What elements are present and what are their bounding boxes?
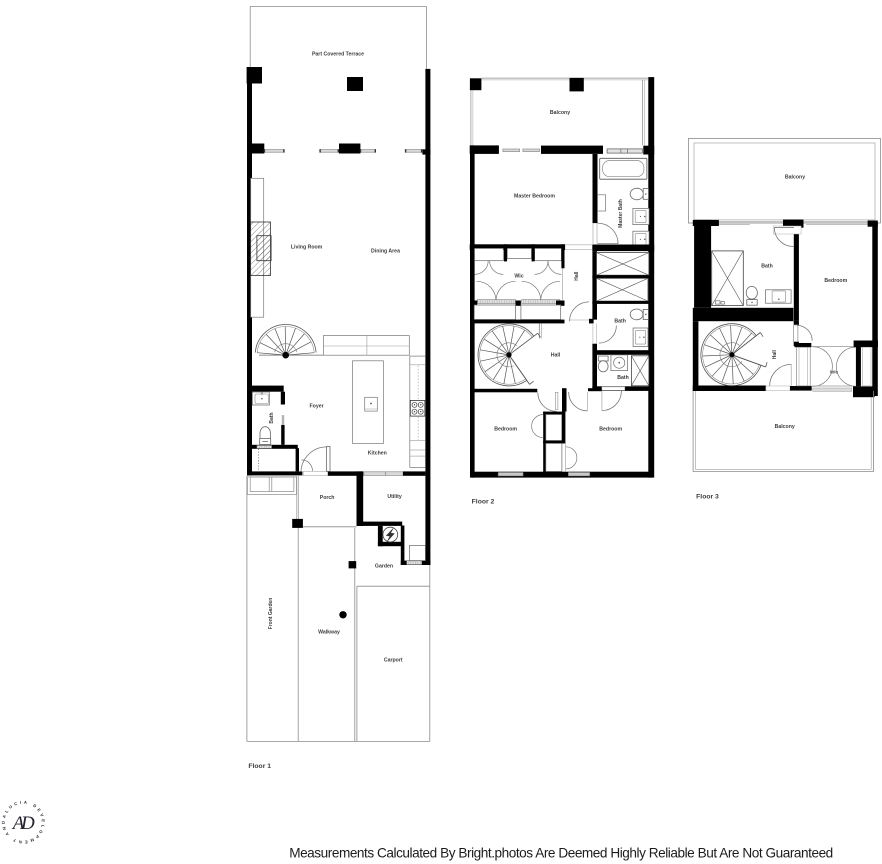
svg-text:Floor 1: Floor 1 bbox=[248, 763, 271, 770]
svg-text:Porch: Porch bbox=[320, 495, 335, 501]
svg-text:Part Covered Terrace: Part Covered Terrace bbox=[312, 52, 364, 58]
svg-text:Bedroom: Bedroom bbox=[599, 427, 622, 433]
svg-text:Bath: Bath bbox=[761, 264, 773, 270]
svg-text:Walkway: Walkway bbox=[318, 629, 340, 635]
svg-text:Hall: Hall bbox=[551, 352, 561, 358]
svg-text:Bath: Bath bbox=[617, 375, 629, 381]
svg-text:Front Garden: Front Garden bbox=[268, 598, 274, 630]
svg-text:Foyer: Foyer bbox=[310, 403, 324, 409]
svg-text:Wic: Wic bbox=[514, 273, 523, 279]
svg-text:Floor 3: Floor 3 bbox=[696, 494, 719, 501]
svg-text:Hall: Hall bbox=[772, 350, 778, 360]
svg-text:Master Bedroom: Master Bedroom bbox=[514, 193, 555, 199]
svg-text:Carport: Carport bbox=[384, 658, 403, 664]
svg-text:Utility: Utility bbox=[387, 494, 402, 500]
svg-text:Wic: Wic bbox=[830, 370, 839, 375]
svg-text:Master Bath: Master Bath bbox=[618, 199, 624, 228]
svg-text:Balcony: Balcony bbox=[775, 424, 795, 430]
svg-text:Bath: Bath bbox=[614, 318, 626, 324]
svg-text:Balcony: Balcony bbox=[550, 110, 570, 116]
svg-text:Kitchen: Kitchen bbox=[368, 451, 387, 457]
svg-text:Bedroom: Bedroom bbox=[824, 278, 847, 284]
svg-text:Bedroom: Bedroom bbox=[494, 427, 517, 433]
svg-text:Floor 2: Floor 2 bbox=[472, 498, 495, 505]
svg-text:Hall: Hall bbox=[574, 271, 580, 281]
svg-text:Living Room: Living Room bbox=[291, 245, 323, 251]
svg-text:Dining Area: Dining Area bbox=[371, 249, 400, 255]
svg-text:Balcony: Balcony bbox=[785, 175, 805, 181]
svg-text:Garden: Garden bbox=[375, 564, 393, 570]
svg-text:Measurements Calculated By Bri: Measurements Calculated By Bright.photos… bbox=[289, 846, 833, 861]
svg-text:Bath: Bath bbox=[269, 412, 275, 423]
